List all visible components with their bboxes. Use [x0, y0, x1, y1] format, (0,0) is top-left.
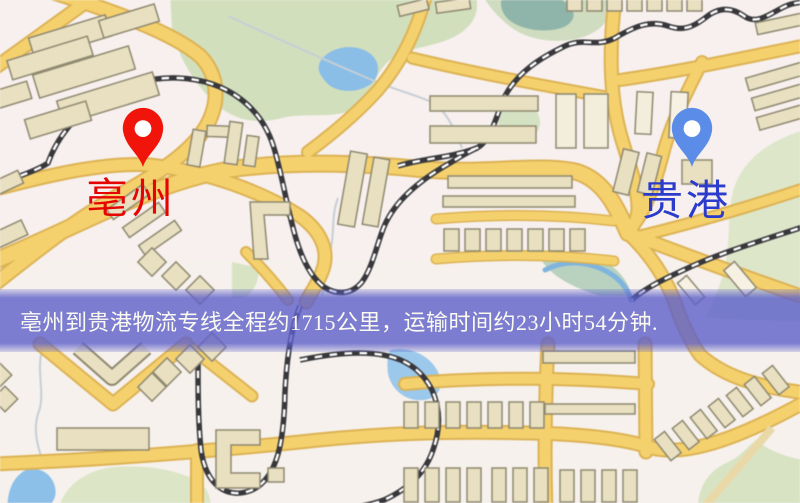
- map-background: [0, 0, 800, 503]
- destination-city-label: 贵港: [641, 181, 731, 223]
- origin-pin-icon[interactable]: [118, 103, 168, 168]
- map-canvas: 亳州 贵港 亳州到贵港物流专线全程约1715公里，运输时间约23小时54分钟.: [0, 0, 800, 503]
- destination-pin-icon[interactable]: [667, 103, 717, 168]
- route-info-text: 亳州到贵港物流专线全程约1715公里，运输时间约23小时54分钟.: [0, 305, 658, 337]
- origin-city-label: 亳州: [86, 179, 176, 221]
- route-info-banner: 亳州到贵港物流专线全程约1715公里，运输时间约23小时54分钟.: [0, 289, 800, 352]
